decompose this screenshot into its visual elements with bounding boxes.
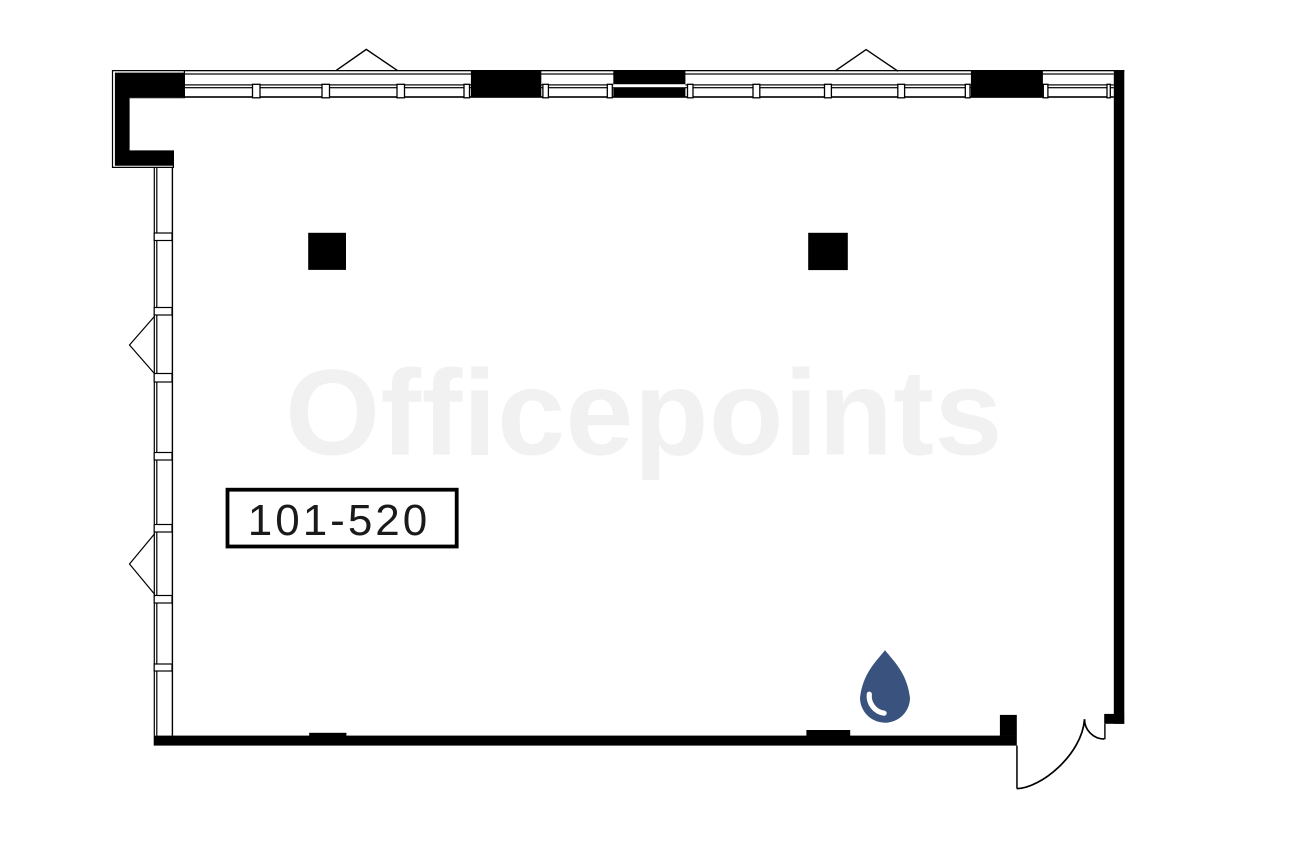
svg-text:101-520: 101-520 — [248, 496, 430, 545]
svg-text:Officepoints: Officepoints — [285, 345, 1003, 481]
